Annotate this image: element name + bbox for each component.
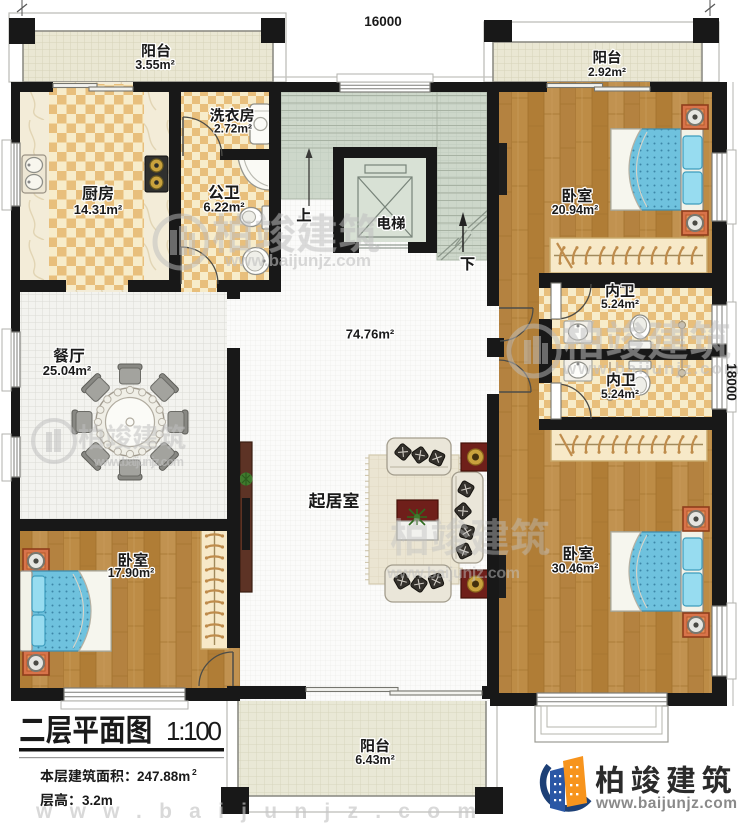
svg-text:74.76m²: 74.76m² <box>346 327 395 342</box>
svg-text:2.72m²: 2.72m² <box>214 122 252 136</box>
svg-text:25.04m²: 25.04m² <box>43 363 92 378</box>
svg-text:www.baijunjz.com: www.baijunjz.com <box>595 795 737 812</box>
svg-text:247.88m: 247.88m <box>137 769 190 784</box>
svg-text:www.baijunjz.com: www.baijunjz.com <box>386 565 520 582</box>
svg-text:2.92m²: 2.92m² <box>588 65 626 79</box>
svg-text:6.22m²: 6.22m² <box>203 200 245 215</box>
svg-text:5.24m²: 5.24m² <box>601 297 639 311</box>
svg-text:16000: 16000 <box>364 14 402 29</box>
svg-text:14.31m²: 14.31m² <box>74 202 123 217</box>
svg-text:3.55m²: 3.55m² <box>135 58 175 72</box>
svg-text:3.2m: 3.2m <box>82 793 113 808</box>
svg-text:30.46m²: 30.46m² <box>552 562 599 576</box>
svg-text:5.24m²: 5.24m² <box>601 387 639 401</box>
svg-text:www.baijunjz.com: www.baijunjz.com <box>93 455 184 469</box>
svg-text:20.94m²: 20.94m² <box>552 203 599 217</box>
svg-text:6.43m²: 6.43m² <box>355 753 395 767</box>
svg-text:1:100: 1:100 <box>166 716 222 746</box>
svg-text:2: 2 <box>192 767 197 777</box>
svg-text:17.90m²: 17.90m² <box>108 566 155 580</box>
svg-text:18000: 18000 <box>724 363 739 401</box>
svg-text:www.baijunjz.com: www.baijunjz.com <box>224 251 371 270</box>
